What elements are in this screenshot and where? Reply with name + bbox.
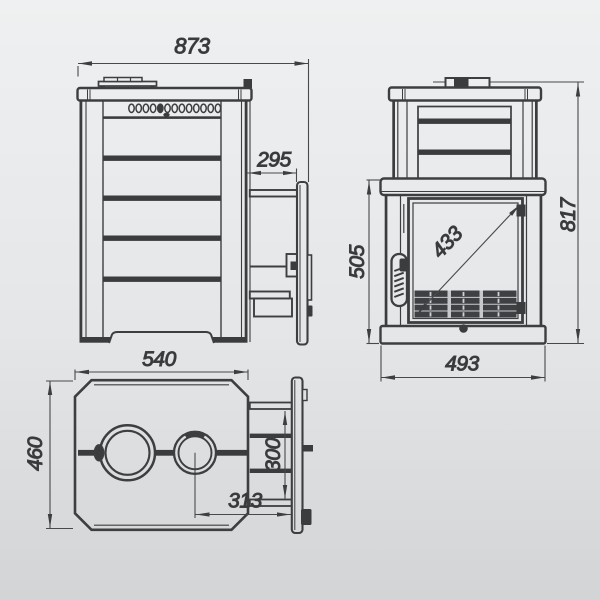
dim-label-493: 493 (445, 353, 480, 376)
stove-technical-drawing: 873 295 (0, 0, 600, 600)
door-handle-spring (392, 254, 408, 306)
dim-label-540: 540 (142, 348, 177, 371)
door-hinge-bottom (517, 302, 526, 314)
dim-label-460: 460 (24, 436, 47, 471)
mounting-flange-side (297, 182, 308, 345)
dim-label-300: 300 (262, 437, 285, 472)
bench-plate (381, 179, 546, 196)
heater-top-plate (389, 88, 541, 101)
dim-label-505: 505 (346, 244, 369, 279)
dim-label-295: 295 (256, 149, 292, 172)
chimney-collar (446, 78, 490, 88)
door-grate (415, 291, 517, 318)
latch-lever (308, 255, 312, 300)
dim-label-873: 873 (174, 34, 211, 59)
rear-flue-stub (244, 79, 253, 88)
dim-label-313: 313 (228, 490, 263, 513)
ash-knob (459, 324, 468, 333)
lid-handle (95, 445, 104, 461)
side-top-plate (78, 88, 252, 101)
dim-label-817: 817 (557, 196, 580, 232)
drawing-canvas: 873 295 (0, 0, 600, 600)
